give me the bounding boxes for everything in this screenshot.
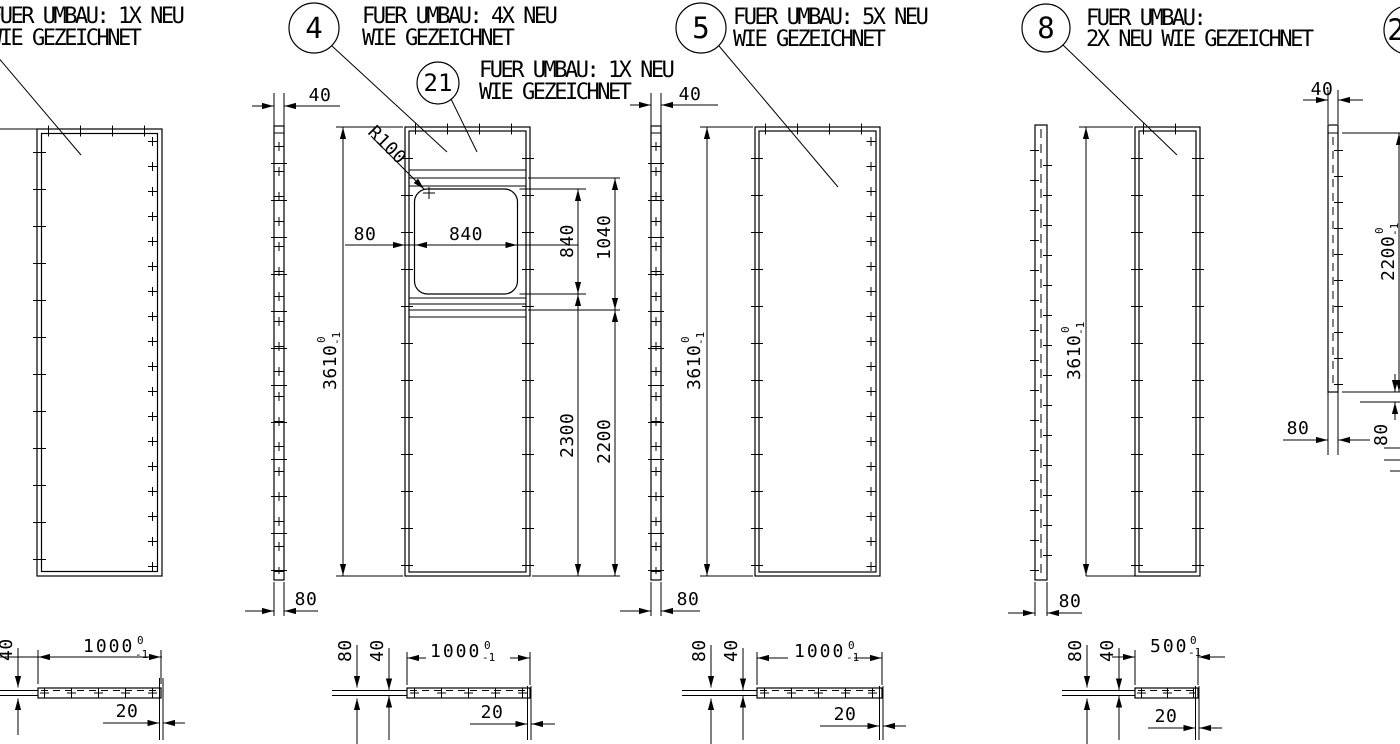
part-group-8: 8 FUER UMBAU: 2X NEU WIE GEZEICHNET 80 3…: [1008, 4, 1314, 744]
dim-20-label: 20: [116, 701, 139, 722]
panel-4-side-view: [274, 126, 284, 580]
svg-text:0: 0: [1059, 326, 1072, 333]
dim-40-label: 40: [1097, 639, 1118, 662]
svg-text:-1: -1: [1188, 646, 1201, 659]
dim-40-label: 40: [679, 84, 702, 105]
dim-40-label: 40: [0, 638, 17, 661]
dim-840-v-label: 840: [557, 224, 578, 258]
dim-2300-label: 2300: [557, 413, 578, 458]
svg-text:0: 0: [1373, 227, 1386, 234]
svg-text:-1: -1: [135, 648, 148, 661]
dim-500-label: 500: [1150, 636, 1189, 657]
panel-5-front-view: [755, 127, 880, 576]
dim-20-label: 20: [481, 702, 504, 723]
panel-1-front-view: [37, 129, 162, 576]
dim-1000-label: 1000: [430, 641, 481, 662]
dim-20-label: 20: [834, 704, 857, 725]
svg-text:3610: 3610: [1064, 335, 1085, 380]
cad-drawing-sheet: FUER UMBAU: 1X NEU WIE GEZEICHNET 1000 0…: [0, 0, 1400, 744]
note-4-line2: WIE GEZEICHNET: [362, 26, 515, 51]
dim-2200: 2200 0 -1: [1373, 223, 1400, 281]
dim-3610: 3610 0 -1: [1059, 322, 1087, 380]
dim-20-label: 20: [1155, 706, 1178, 727]
svg-text:3610: 3610: [320, 345, 341, 390]
dim-2200-label: 2200: [594, 419, 615, 464]
leader-line-21: [451, 99, 477, 152]
part-group-right: 2 40 2200 0 -1 80 80: [1283, 6, 1400, 471]
balloon-right-number: 2: [1387, 13, 1400, 47]
svg-text:2200: 2200: [1378, 236, 1399, 281]
dim-1040-label: 1040: [594, 215, 615, 260]
dim-80-label: 80: [295, 589, 318, 610]
svg-text:0: 0: [137, 634, 144, 647]
svg-text:-1: -1: [694, 332, 707, 345]
dim-40-label: 40: [1311, 79, 1334, 100]
clipped-part-stubs: [1384, 448, 1400, 471]
cross-member-upper: [409, 170, 526, 186]
svg-text:3610: 3610: [684, 345, 705, 390]
balloon-21-number: 21: [424, 69, 453, 97]
note-21-line2: WIE GEZEICHNET: [479, 80, 632, 105]
svg-text:-1: -1: [330, 332, 343, 345]
svg-text:-1: -1: [846, 651, 859, 664]
panel-4-bottom-view: 1000 0 -1 80 40 20: [332, 639, 555, 744]
dim-3610: 3610 0 -1: [679, 332, 707, 390]
note-5-line2: WIE GEZEICHNET: [733, 27, 886, 52]
note-left-line2: WIE GEZEICHNET: [0, 26, 142, 51]
dim-80-rotated-label: 80: [1371, 423, 1392, 446]
dim-80-label: 80: [1065, 639, 1086, 662]
balloon-8-number: 8: [1037, 11, 1054, 45]
dim-80-label: 80: [335, 639, 356, 662]
panel-4-front-view: [405, 127, 530, 576]
dim-40-label: 40: [367, 639, 388, 662]
panel-8-bottom-view: 500 0 -1 80 40 20: [1062, 634, 1225, 744]
dim-3610: 3610 0 -1: [315, 332, 343, 390]
dim-80-label: 80: [677, 589, 700, 610]
note-8-line2: 2X NEU WIE GEZEICHNET: [1086, 27, 1314, 52]
svg-text:-1: -1: [1074, 322, 1087, 335]
dim-80-label: 80: [1059, 591, 1082, 612]
svg-text:0: 0: [315, 336, 328, 343]
dim-40-label: 40: [309, 85, 332, 106]
panel-1-bottom-view: 1000 0 -1 40 20: [0, 634, 185, 740]
cross-member-lower: [409, 298, 526, 317]
dim-80-label: 80: [354, 224, 377, 245]
panel-8-side-view: [1035, 125, 1048, 580]
dim-40-label: 40: [721, 639, 742, 662]
dim-80-label: 80: [689, 639, 710, 662]
panel-8-front-view: [1135, 127, 1200, 576]
leader-line-5: [719, 46, 838, 187]
svg-text:-1: -1: [482, 651, 495, 664]
part-group-5: 5 FUER UMBAU: 5X NEU WIE GEZEICHNET 40 8…: [620, 3, 928, 744]
svg-text:0: 0: [679, 336, 692, 343]
panel-5-bottom-view: 1000 0 -1 80 40 20: [682, 639, 906, 744]
cad-drawing-canvas: FUER UMBAU: 1X NEU WIE GEZEICHNET 1000 0…: [0, 0, 1400, 744]
strip-right-side-view: [1328, 125, 1339, 392]
dim-1000-label: 1000: [794, 641, 845, 662]
part-group-4: 4 FUER UMBAU: 4X NEU WIE GEZEICHNET 21 F…: [245, 3, 674, 744]
leader-line-8: [1063, 45, 1177, 155]
balloon-4-number: 4: [305, 11, 322, 45]
dim-80-label: 80: [1287, 418, 1310, 439]
leader-line-left: [0, 42, 81, 155]
panel-5-side-view: [651, 126, 661, 580]
balloon-5-number: 5: [692, 11, 709, 45]
dim-1000-label: 1000: [83, 636, 134, 657]
radius-callout-label: R100: [363, 122, 410, 169]
svg-text:-1: -1: [1388, 223, 1400, 236]
part-group-1: FUER UMBAU: 1X NEU WIE GEZEICHNET 1000 0…: [0, 4, 185, 740]
dim-840-label: 840: [449, 224, 483, 245]
